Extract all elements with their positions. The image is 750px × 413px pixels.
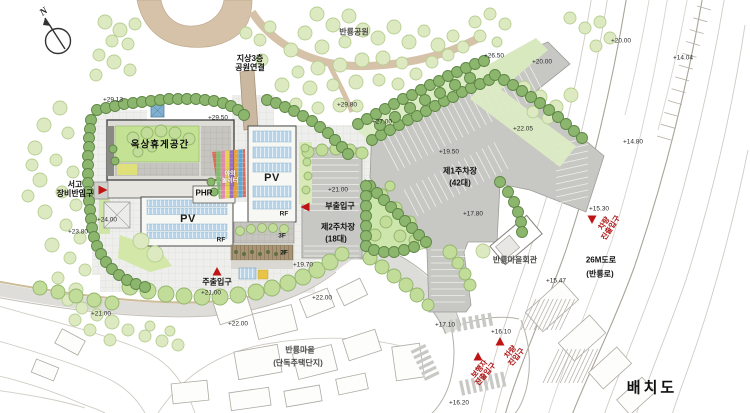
site-plan-drawing [0,0,750,413]
north-compass-icon [43,18,71,54]
railway-hatch [657,6,711,140]
upper-pv-building [248,126,296,222]
marker-vehicle-exit-entrance [588,216,597,225]
marker-pedestrian-entrance [474,352,483,361]
drawing-title: 배치도 [627,381,677,398]
village-houses [31,278,655,413]
site-plan-canvas: 반룡공원지상3층 공원연결옥상휴게공간야외 놀이터PHRPVRFPVRF3F2F… [0,0,750,413]
lower-pv-building [141,197,233,246]
marker-vehicle-entrance [496,337,505,346]
crosswalks [411,313,507,396]
